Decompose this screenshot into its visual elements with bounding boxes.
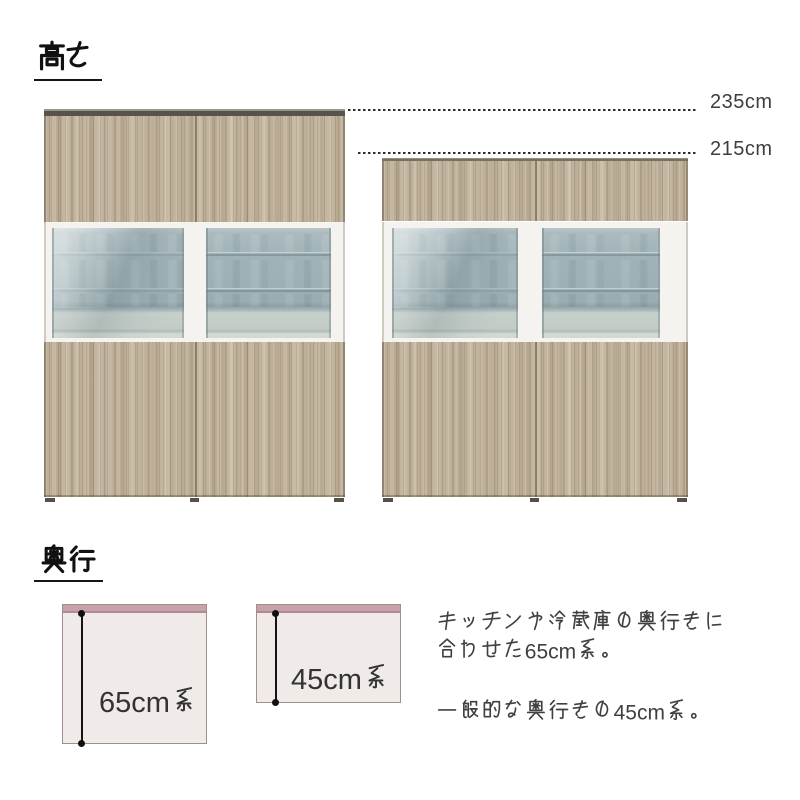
svg-text:65cm: 65cm	[525, 640, 576, 663]
svg-text:45cm: 45cm	[291, 664, 362, 696]
svg-text:65cm: 65cm	[99, 687, 170, 719]
svg-text:45cm: 45cm	[614, 701, 665, 724]
